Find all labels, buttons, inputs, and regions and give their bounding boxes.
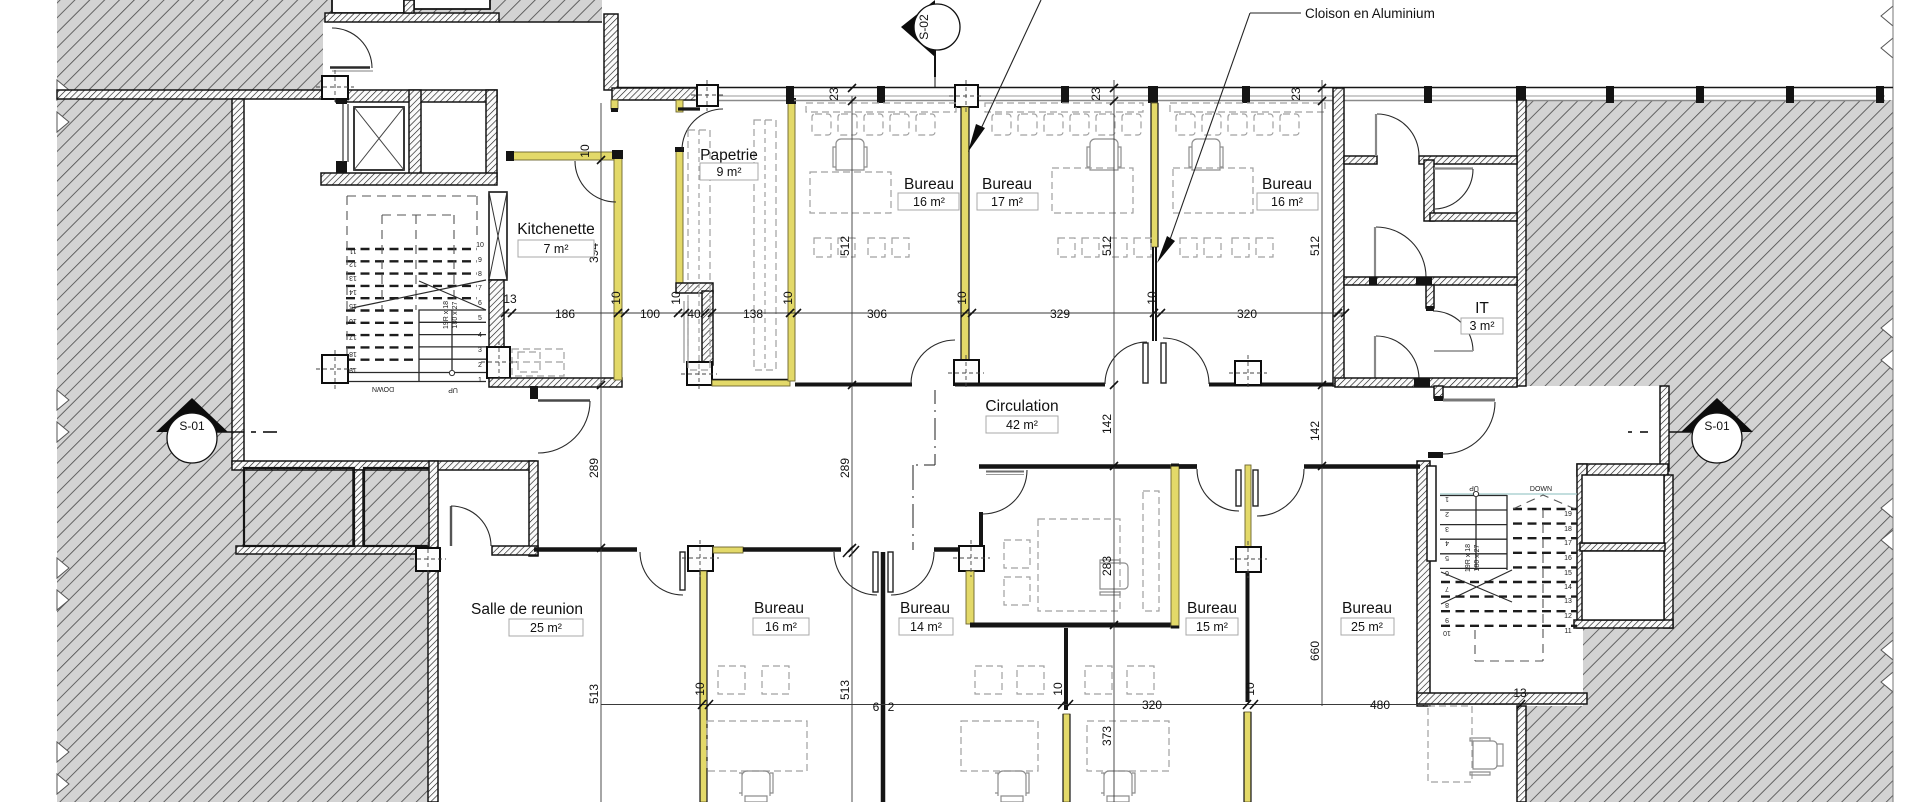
- svg-text:10: 10: [955, 291, 969, 305]
- svg-text:18: 18: [349, 350, 357, 357]
- svg-text:13: 13: [503, 292, 517, 306]
- svg-text:2: 2: [888, 700, 895, 714]
- svg-text:40: 40: [687, 307, 701, 321]
- svg-text:16 m²: 16 m²: [765, 620, 797, 634]
- svg-text:19R x 18: 19R x 18: [443, 301, 450, 329]
- svg-text:18: 18: [1564, 526, 1572, 533]
- svg-text:2: 2: [1445, 510, 1449, 517]
- svg-text:3: 3: [478, 347, 482, 354]
- svg-text:25 m²: 25 m²: [530, 621, 562, 635]
- svg-text:6: 6: [478, 300, 482, 307]
- svg-text:512: 512: [838, 236, 852, 256]
- svg-text:Bureau: Bureau: [1187, 600, 1237, 617]
- svg-text:10: 10: [1145, 291, 1159, 305]
- svg-text:10: 10: [476, 242, 484, 249]
- svg-text:4: 4: [1445, 539, 1449, 546]
- svg-text:11: 11: [1564, 628, 1571, 635]
- svg-text:S-01: S-01: [1704, 419, 1730, 433]
- svg-text:100: 100: [640, 307, 660, 321]
- svg-text:306: 306: [867, 307, 887, 321]
- svg-text:23: 23: [1089, 87, 1103, 101]
- svg-text:25 m²: 25 m²: [1351, 620, 1383, 634]
- svg-text:14: 14: [349, 288, 357, 295]
- svg-text:9: 9: [1445, 616, 1449, 623]
- svg-text:16: 16: [349, 317, 357, 324]
- svg-text:180 x 27: 180 x 27: [452, 301, 459, 328]
- svg-text:Bureau: Bureau: [900, 600, 950, 617]
- svg-text:15: 15: [349, 302, 357, 309]
- svg-text:14: 14: [1564, 584, 1572, 591]
- svg-text:17: 17: [349, 333, 357, 340]
- svg-text:Circulation: Circulation: [985, 398, 1058, 415]
- svg-text:15 m²: 15 m²: [1196, 620, 1228, 634]
- svg-text:19: 19: [349, 366, 357, 373]
- svg-text:513: 513: [838, 680, 852, 700]
- svg-text:186: 186: [555, 307, 575, 321]
- svg-text:Cloison en Aluminium: Cloison en Aluminium: [1305, 6, 1435, 21]
- svg-text:16 m²: 16 m²: [913, 195, 945, 209]
- svg-text:12: 12: [349, 260, 357, 267]
- svg-text:512: 512: [1308, 236, 1322, 256]
- svg-text:320: 320: [1142, 698, 1162, 712]
- svg-text:19R x 18: 19R x 18: [1465, 544, 1472, 572]
- svg-text:14 m²: 14 m²: [910, 620, 942, 634]
- svg-text:289: 289: [587, 458, 601, 478]
- svg-text:17: 17: [1564, 540, 1572, 547]
- svg-text:1: 1: [478, 377, 482, 384]
- svg-text:283: 283: [1100, 556, 1114, 576]
- svg-text:373: 373: [1100, 726, 1114, 746]
- svg-text:23: 23: [1289, 87, 1303, 101]
- svg-text:S-02: S-02: [917, 14, 931, 40]
- svg-text:513: 513: [587, 684, 601, 704]
- svg-text:10: 10: [669, 291, 683, 305]
- svg-text:2: 2: [478, 362, 482, 369]
- svg-text:8: 8: [1445, 601, 1449, 608]
- svg-text:660: 660: [1308, 641, 1322, 661]
- svg-text:13: 13: [1513, 686, 1527, 700]
- svg-text:15: 15: [1564, 570, 1572, 577]
- svg-text:Bureau: Bureau: [982, 176, 1032, 193]
- svg-text:4: 4: [478, 332, 482, 339]
- svg-text:42 m²: 42 m²: [1006, 418, 1038, 432]
- svg-text:12: 12: [1564, 613, 1572, 620]
- svg-text:9 m²: 9 m²: [717, 165, 742, 179]
- svg-text:9: 9: [478, 257, 482, 264]
- svg-text:142: 142: [1308, 421, 1322, 441]
- svg-text:Kitchenette: Kitchenette: [517, 221, 595, 238]
- svg-text:UP: UP: [448, 386, 458, 393]
- svg-text:Bureau: Bureau: [1342, 600, 1392, 617]
- svg-text:10: 10: [693, 682, 707, 696]
- svg-text:5: 5: [1445, 554, 1449, 561]
- svg-text:1: 1: [1445, 495, 1449, 502]
- svg-text:UP: UP: [1469, 484, 1479, 491]
- svg-text:7: 7: [478, 285, 482, 292]
- svg-text:8: 8: [478, 271, 482, 278]
- svg-text:Bureau: Bureau: [904, 176, 954, 193]
- svg-text:Bureau: Bureau: [754, 600, 804, 617]
- svg-text:Papetrie: Papetrie: [700, 147, 758, 164]
- svg-text:142: 142: [1100, 414, 1114, 434]
- svg-text:289: 289: [838, 458, 852, 478]
- svg-text:6: 6: [873, 700, 880, 714]
- svg-text:S-01: S-01: [179, 419, 205, 433]
- svg-text:10: 10: [578, 144, 592, 158]
- svg-text:10: 10: [781, 291, 795, 305]
- svg-text:13: 13: [1564, 598, 1572, 605]
- svg-text:17 m²: 17 m²: [991, 195, 1023, 209]
- svg-text:19: 19: [1564, 511, 1572, 518]
- svg-text:512: 512: [1100, 236, 1114, 256]
- svg-text:Bureau: Bureau: [1262, 176, 1312, 193]
- svg-text:16: 16: [1564, 555, 1572, 562]
- svg-text:329: 329: [1050, 307, 1070, 321]
- svg-text:DOWN: DOWN: [1530, 486, 1552, 493]
- svg-text:180 x 27: 180 x 27: [1474, 544, 1481, 571]
- svg-text:7: 7: [1445, 585, 1449, 592]
- svg-text:3: 3: [1445, 525, 1449, 532]
- svg-text:10: 10: [1443, 629, 1451, 636]
- svg-text:320: 320: [1237, 307, 1257, 321]
- svg-text:IT: IT: [1475, 300, 1489, 317]
- svg-text:6: 6: [1445, 569, 1449, 576]
- svg-text:10: 10: [1243, 682, 1257, 696]
- svg-text:23: 23: [827, 87, 841, 101]
- svg-text:3 m²: 3 m²: [1470, 319, 1495, 333]
- svg-text:138: 138: [743, 307, 763, 321]
- svg-text:10: 10: [1051, 682, 1065, 696]
- svg-text:13: 13: [349, 274, 357, 281]
- svg-text:11: 11: [349, 247, 356, 254]
- svg-text:Salle de reunion: Salle de reunion: [471, 601, 583, 618]
- svg-text:7 m²: 7 m²: [544, 242, 569, 256]
- svg-text:5: 5: [478, 315, 482, 322]
- svg-text:10: 10: [609, 291, 623, 305]
- svg-text:480: 480: [1370, 698, 1390, 712]
- svg-text:16 m²: 16 m²: [1271, 195, 1303, 209]
- svg-text:DOWN: DOWN: [372, 385, 394, 392]
